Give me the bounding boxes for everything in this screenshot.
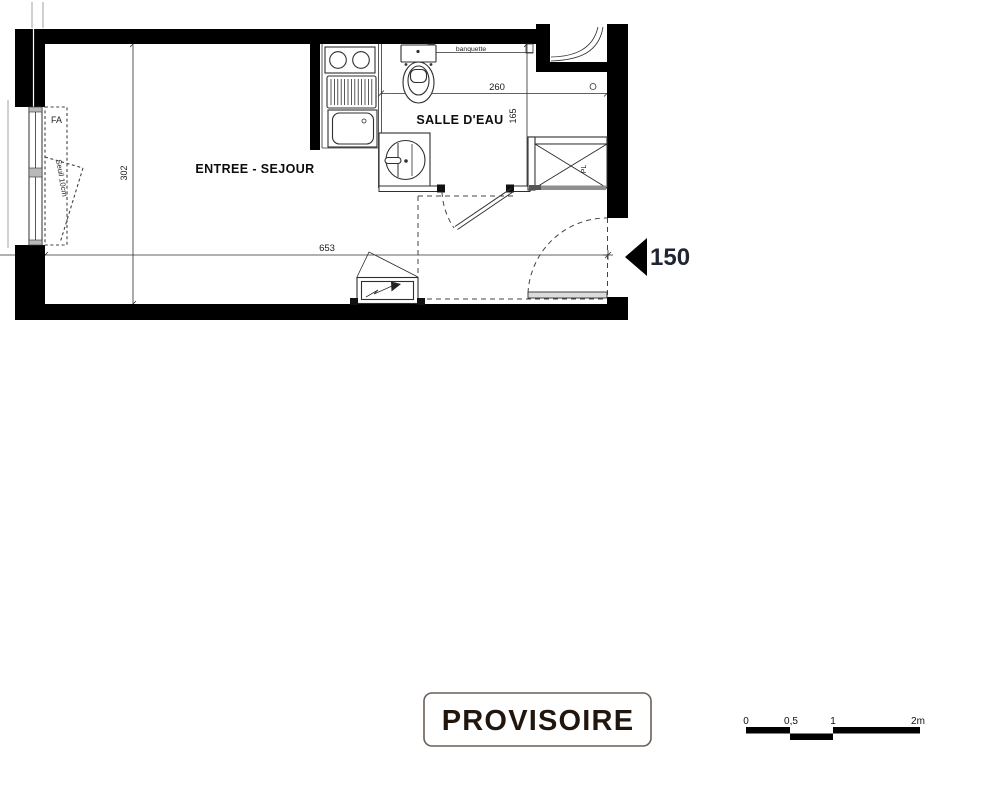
wall-bottom xyxy=(43,304,608,320)
entrance-door-leaf xyxy=(528,292,607,298)
wall-duct-bottom xyxy=(536,62,607,72)
door-jamb-left xyxy=(437,185,445,193)
bath-door-swing xyxy=(442,192,454,228)
duct-icon xyxy=(551,27,603,61)
floor-plan-canvas: FA Seuil 10cm xyxy=(0,0,997,800)
entrance-door xyxy=(528,218,607,298)
washbasin-icon xyxy=(379,133,430,187)
scale-tick-05: 0,5 xyxy=(784,716,798,727)
dim-165: 165 xyxy=(508,108,518,123)
window-type-label: FA xyxy=(51,115,62,125)
wall-left-upper xyxy=(15,29,45,107)
drainboard-icon xyxy=(327,76,376,108)
banquette-label: banquette xyxy=(456,46,486,53)
dimension-lines xyxy=(0,2,613,307)
closet-front xyxy=(541,186,606,191)
toilet-icon xyxy=(401,45,436,103)
wall-top xyxy=(15,29,536,44)
scale-tick-1: 1 xyxy=(830,716,836,727)
kitchen-unit xyxy=(322,44,382,188)
wall-left-lower xyxy=(15,245,45,320)
entrance-door-swing xyxy=(528,218,607,293)
entry-width-label: 150 xyxy=(650,244,690,271)
room-label-salle-deau: SALLE D'EAU xyxy=(416,113,503,127)
window-french: FA Seuil 10cm xyxy=(8,100,83,248)
dim-653: 653 xyxy=(319,243,335,254)
hall-dashed-outline xyxy=(418,196,608,299)
sink-icon xyxy=(328,110,377,147)
left-arrow-icon xyxy=(625,238,647,276)
bath-wall-and-door xyxy=(379,185,530,230)
stamp-label: PROVISOIRE xyxy=(442,705,635,737)
wall-right-lower xyxy=(607,297,628,320)
entry-arrow: 150 xyxy=(625,238,690,276)
wall-kitchen-partition xyxy=(310,29,320,150)
scale-tick-2m: 2m xyxy=(911,716,925,727)
provisoire-stamp: PROVISOIRE xyxy=(424,693,651,746)
scale-bar: 0 0,5 1 2m xyxy=(743,716,925,740)
banquette: banquette xyxy=(428,44,533,53)
bath-door-leaf xyxy=(455,189,514,230)
wall-right-upper xyxy=(607,24,628,218)
dim-260: 260 xyxy=(489,82,505,93)
stove-icon xyxy=(325,47,375,73)
floor-plan: FA Seuil 10cm xyxy=(0,0,997,800)
room-label-entree-sejour: ENTREE - SEJOUR xyxy=(195,162,314,176)
dim-302: 302 xyxy=(119,165,129,180)
closet-crossed: PL xyxy=(528,137,607,190)
scale-tick-0: 0 xyxy=(743,716,749,727)
closet-label: PL xyxy=(581,165,588,174)
electrical-box xyxy=(350,252,425,305)
